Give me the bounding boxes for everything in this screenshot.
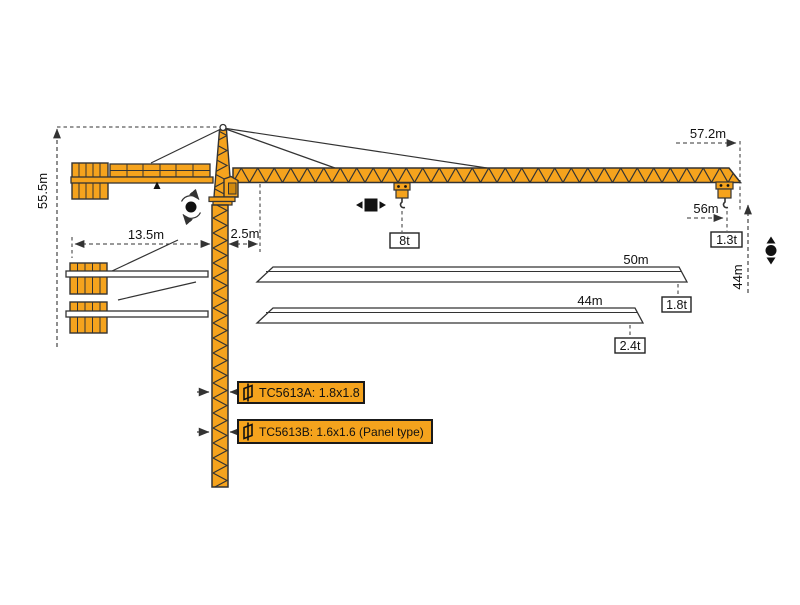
mast-variant-a-label: TC5613A: 1.8x1.8 <box>259 386 360 400</box>
hook-icon <box>401 198 405 208</box>
variant-2-leader <box>118 282 196 300</box>
hook-radius-label: 56m <box>693 201 718 216</box>
counter-jib <box>71 163 213 199</box>
tip-load-50m: 1.8t <box>666 298 687 312</box>
max-load-value: 8t <box>399 234 410 248</box>
root-offset-label: 2.5m <box>231 226 260 241</box>
tower-mast <box>212 205 228 487</box>
dim-hook-radius: 56m 1.3t <box>687 201 742 247</box>
turntable <box>209 197 235 205</box>
total-height-label: 55.5m <box>35 173 50 209</box>
slewing-icon <box>182 196 201 219</box>
jib-50m-label: 50m <box>623 252 648 267</box>
counter-jib-radius-label: 13.5m <box>128 227 164 242</box>
main-jib <box>233 168 741 183</box>
mast-variant-b-label: TC5613B: 1.6x1.6 (Panel type) <box>259 425 424 439</box>
hoisting-icon <box>766 237 777 265</box>
mast-variant-b: TC5613B: 1.6x1.6 (Panel type) <box>197 420 432 443</box>
trolley <box>394 183 410 208</box>
cab-window <box>229 183 237 194</box>
counter-jib-variant-1 <box>66 240 208 294</box>
jib-variant-44m: 44m 2.4t <box>257 293 645 353</box>
tip-hook-icon <box>724 198 728 208</box>
tie-rods <box>151 128 487 168</box>
dim-counter-jib: 13.5m <box>72 227 210 258</box>
tip-load-44m: 2.4t <box>620 339 641 353</box>
apex-pin-icon <box>220 125 226 131</box>
jib-variant-50m: 50m 1.8t <box>257 252 691 312</box>
counter-jib-beam <box>71 177 213 183</box>
crane-diagram: 50m 1.8t 44m 2.4t 55.5m 13.5m <box>0 0 800 600</box>
crane-diagram-svg: 50m 1.8t 44m 2.4t 55.5m 13.5m <box>0 0 800 600</box>
dim-max-load: 8t <box>390 211 419 248</box>
variant-1-leader <box>112 240 178 271</box>
tip-load-value: 1.3t <box>716 233 737 247</box>
jib-44m-label: 44m <box>577 293 602 308</box>
tip-radius-label: 57.2m <box>690 126 726 141</box>
operator-cab <box>224 177 238 198</box>
hook-height-label: 44m <box>730 264 745 289</box>
dim-hook-height: 44m <box>730 205 748 293</box>
trolley-travel-icon <box>356 199 386 212</box>
